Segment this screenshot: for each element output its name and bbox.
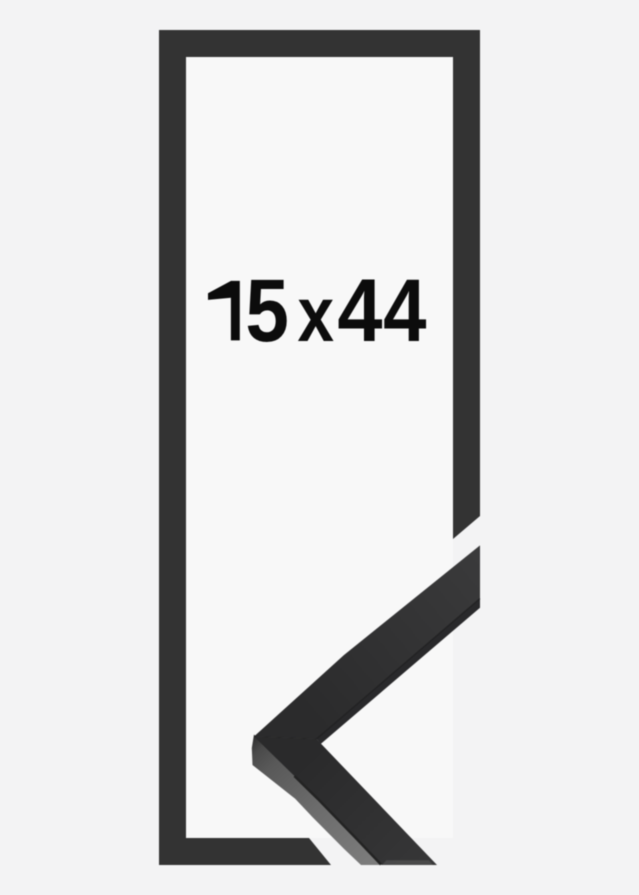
svg-text:4: 4 bbox=[383, 260, 427, 360]
svg-text:5: 5 bbox=[245, 260, 289, 360]
svg-text:x: x bbox=[298, 272, 335, 359]
svg-text:4: 4 bbox=[337, 261, 383, 361]
